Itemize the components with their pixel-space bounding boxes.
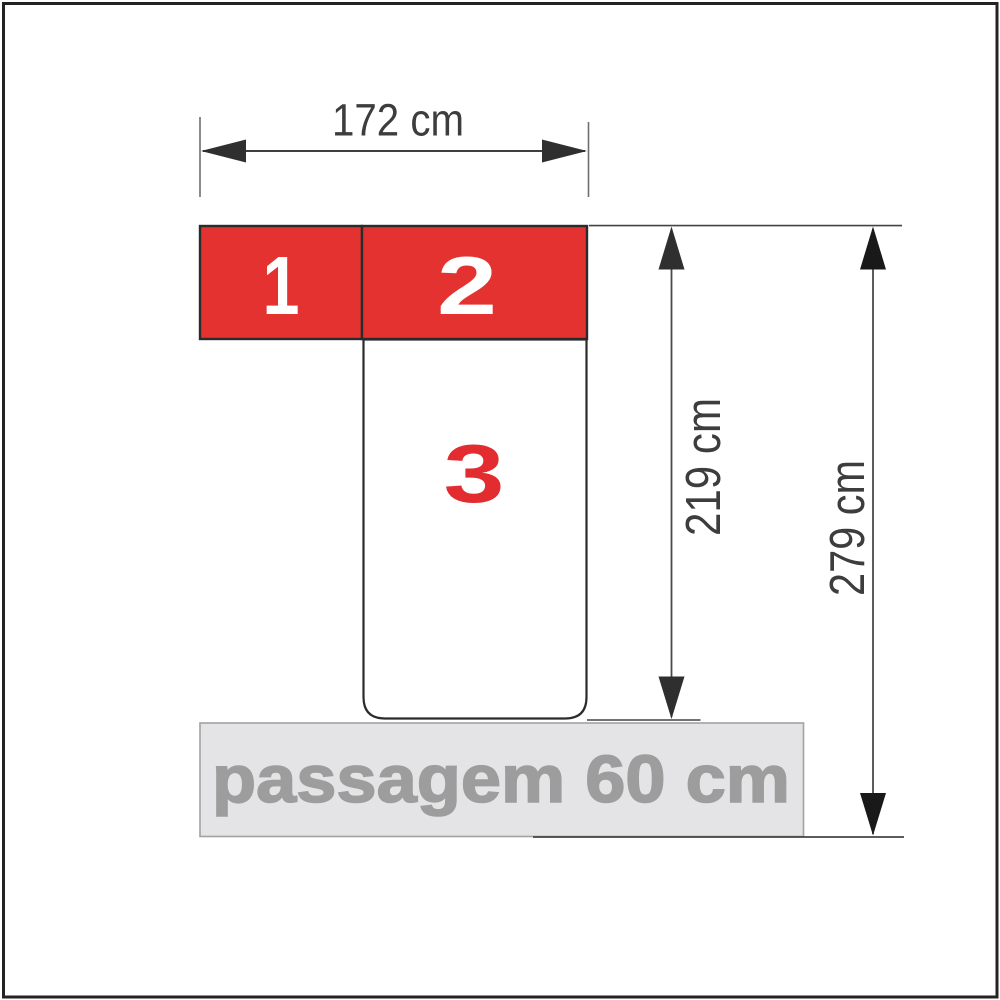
svg-text:2: 2 — [437, 239, 497, 332]
svg-text:279 cm: 279 cm — [821, 460, 875, 596]
svg-text:172 cm: 172 cm — [332, 95, 464, 146]
svg-text:219 cm: 219 cm — [677, 398, 731, 536]
svg-text:1: 1 — [263, 239, 300, 332]
svg-text:passagem 60 cm: passagem 60 cm — [212, 742, 790, 817]
svg-text:3: 3 — [444, 427, 505, 520]
